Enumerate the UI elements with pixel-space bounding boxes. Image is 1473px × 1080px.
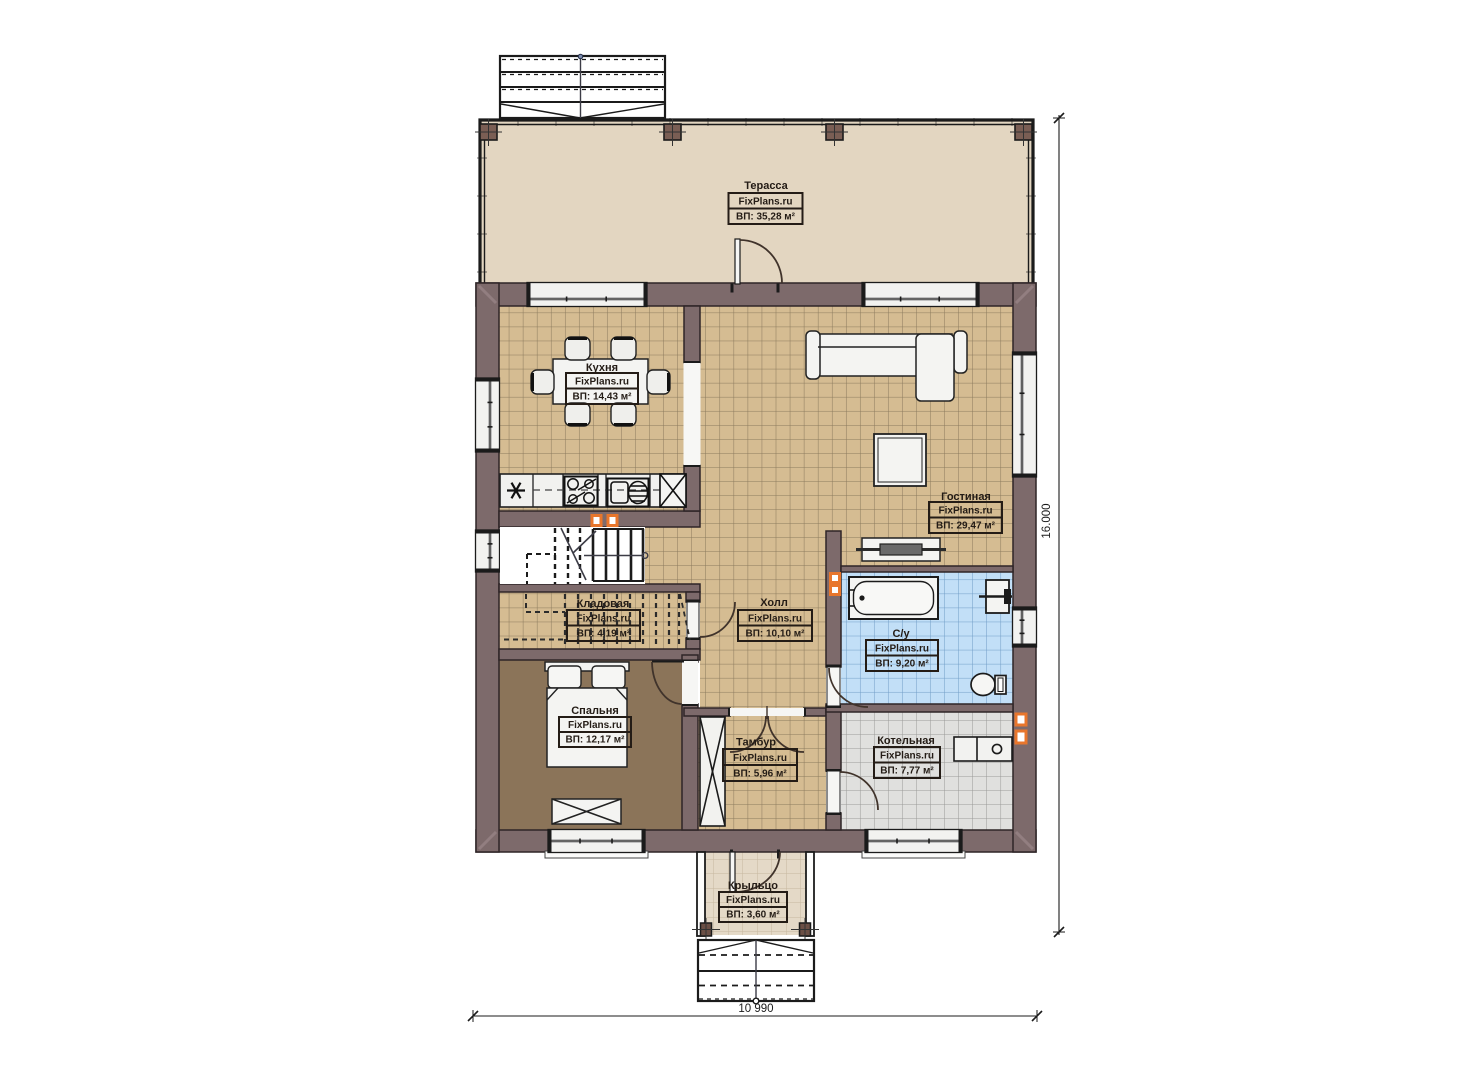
svg-text:Крыльцо: Крыльцо [728,880,778,892]
svg-text:ВП: 10,10 м²: ВП: 10,10 м² [745,629,805,640]
svg-text:FixPlans.ru: FixPlans.ru [568,720,622,731]
svg-text:ВП: 14,43 м²: ВП: 14,43 м² [572,392,632,403]
svg-text:Тамбур: Тамбур [736,737,776,749]
svg-text:ВП: 35,28 м²: ВП: 35,28 м² [736,212,796,223]
svg-text:ВП: 7,77 м²: ВП: 7,77 м² [880,766,934,777]
svg-text:FixPlans.ru: FixPlans.ru [575,377,629,388]
svg-text:ВП: 3,60 м²: ВП: 3,60 м² [726,910,780,921]
svg-text:FixPlans.ru: FixPlans.ru [880,751,934,762]
svg-text:FixPlans.ru: FixPlans.ru [739,197,793,208]
svg-text:FixPlans.ru: FixPlans.ru [939,506,993,517]
svg-text:16.000: 16.000 [1041,503,1053,538]
svg-text:FixPlans.ru: FixPlans.ru [726,895,780,906]
svg-text:FixPlans.ru: FixPlans.ru [875,644,929,655]
svg-text:С/у: С/у [892,628,910,640]
svg-text:Котельная: Котельная [877,735,935,747]
svg-text:10 990: 10 990 [738,1003,773,1015]
svg-text:ВП: 9,20 м²: ВП: 9,20 м² [875,659,929,670]
svg-text:ВП: 29,47 м²: ВП: 29,47 м² [936,521,996,532]
svg-text:Холл: Холл [760,597,788,609]
svg-text:Терасса: Терасса [744,180,788,192]
svg-text:Кладовая: Кладовая [577,598,630,610]
svg-text:ВП: 5,96 м²: ВП: 5,96 м² [733,769,787,780]
svg-text:Спальня: Спальня [571,705,619,717]
svg-text:FixPlans.ru: FixPlans.ru [733,753,787,764]
svg-text:ВП: 12,17 м²: ВП: 12,17 м² [565,735,625,746]
svg-text:FixPlans.ru: FixPlans.ru [748,614,802,625]
